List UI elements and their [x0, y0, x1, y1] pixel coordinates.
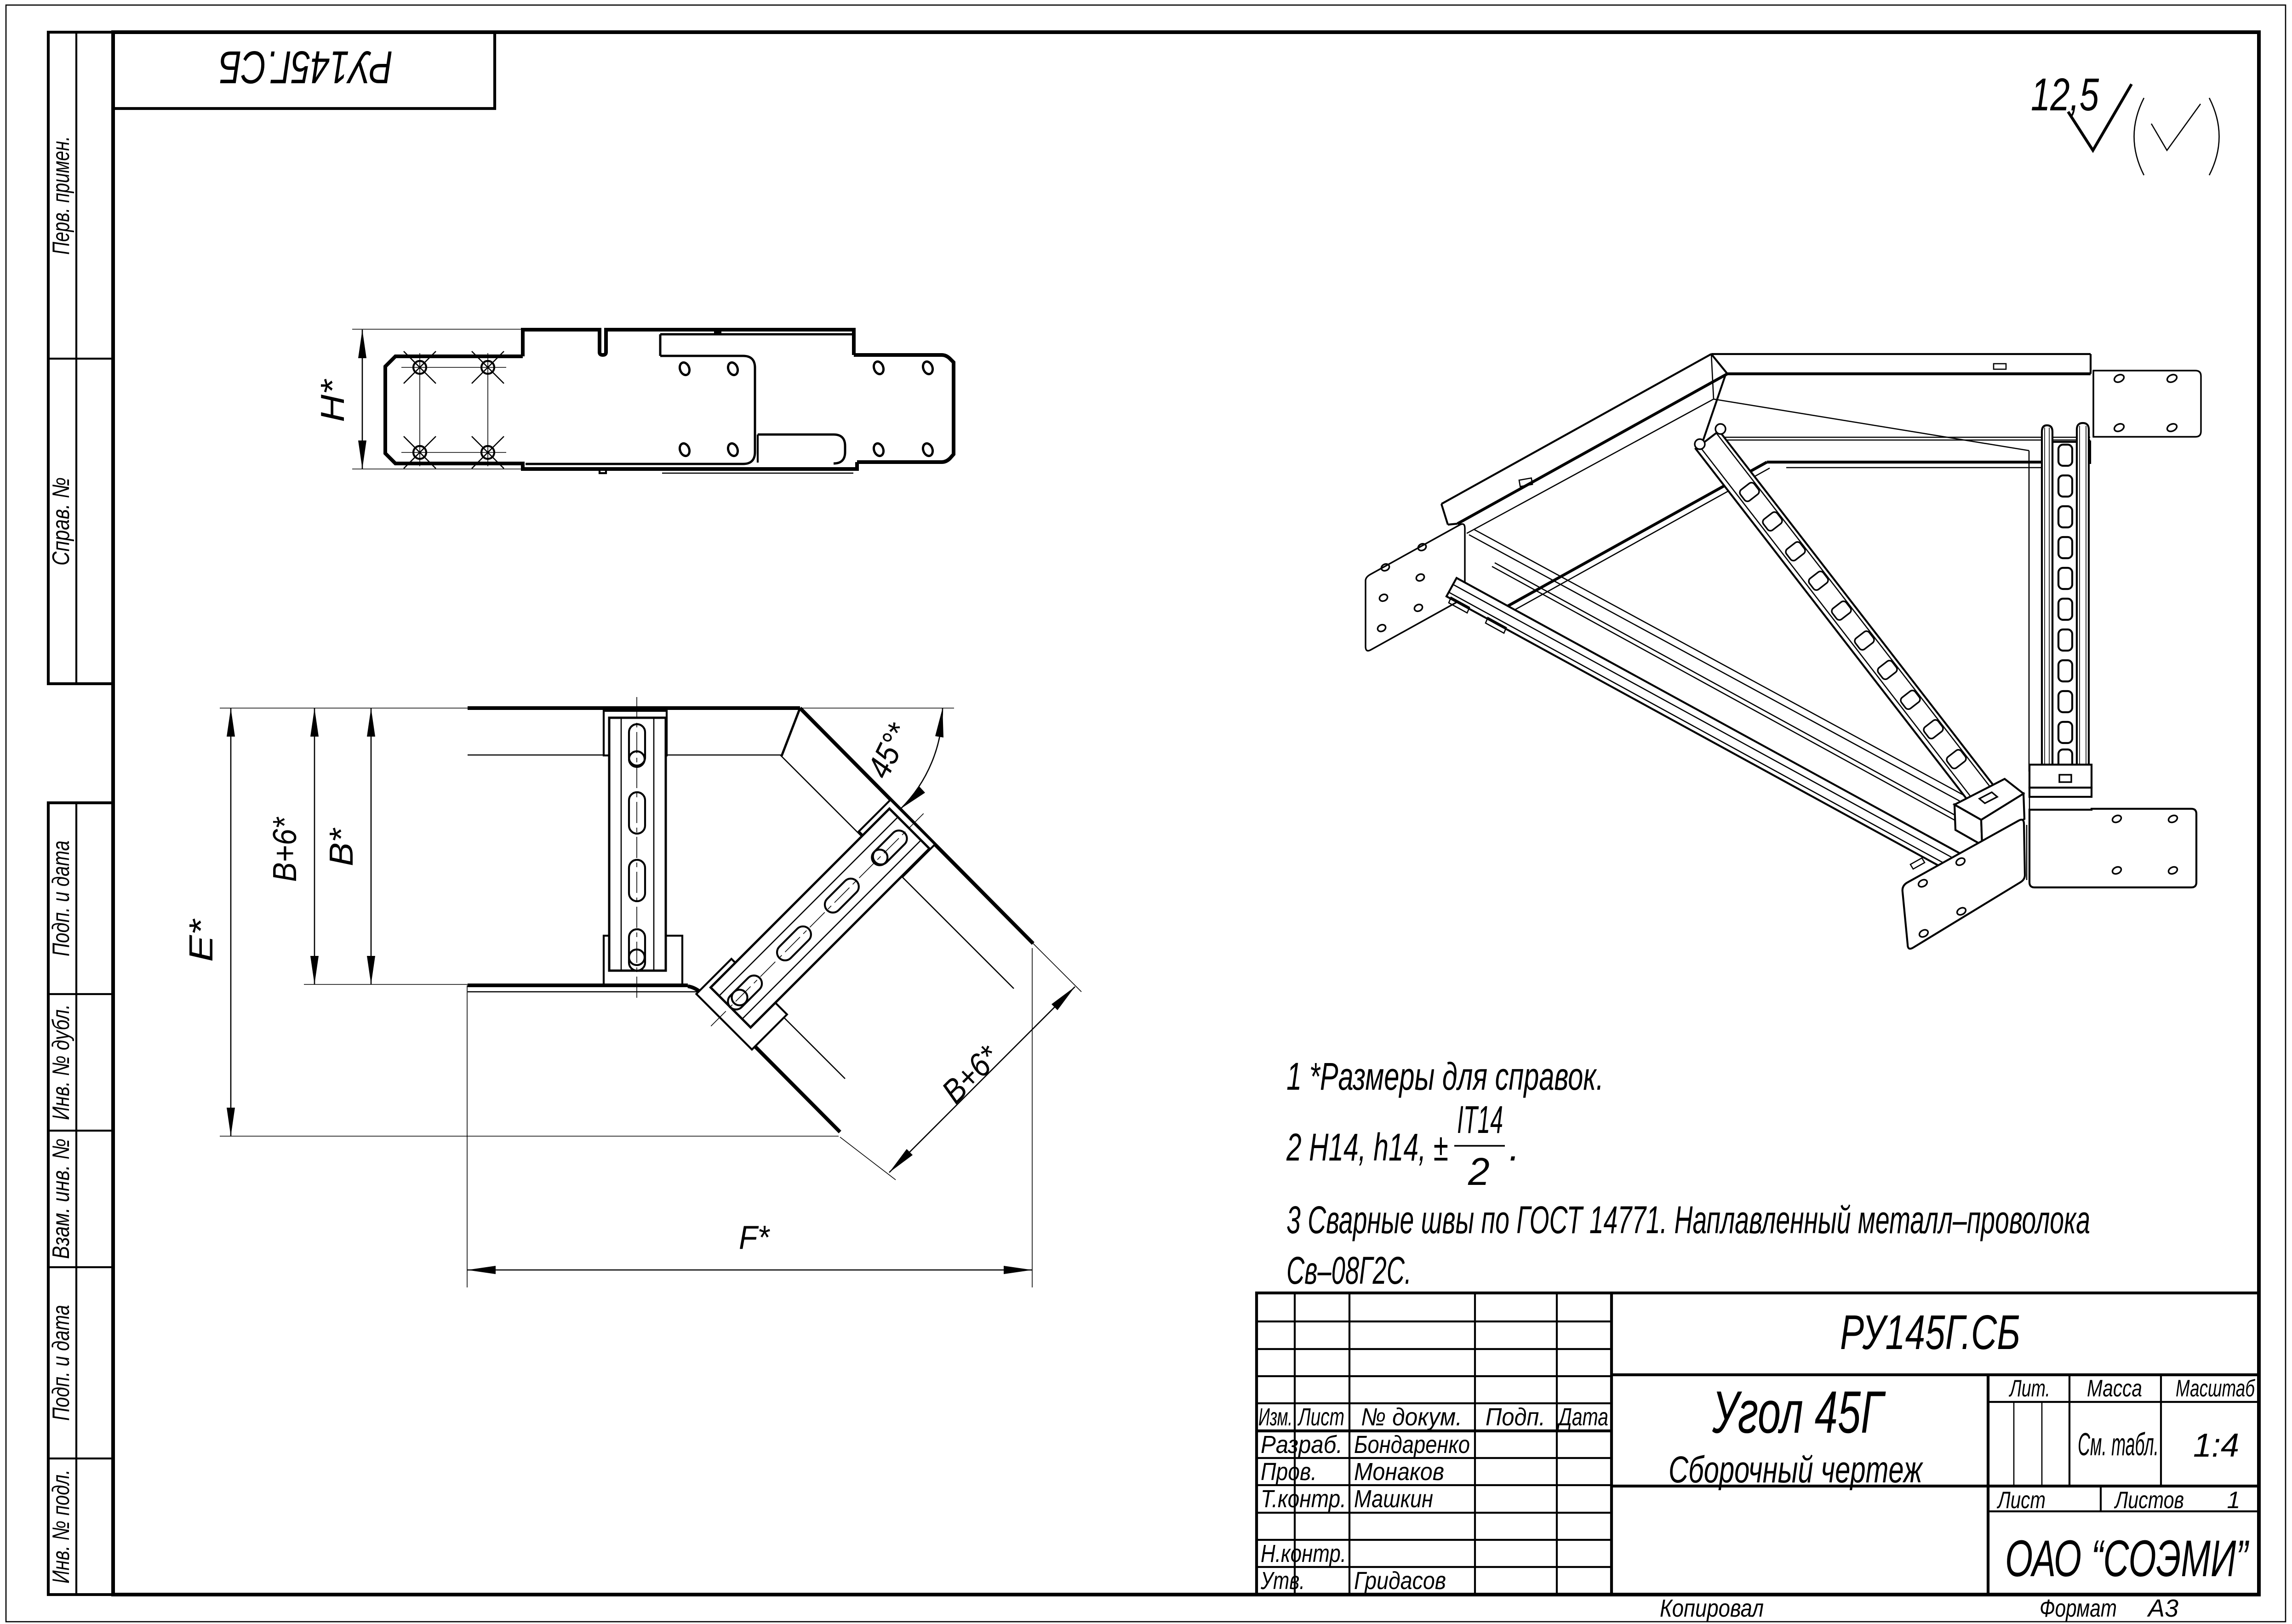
- svg-text:Монаков: Монаков: [1354, 1458, 1444, 1486]
- svg-text:1 *Размеры для справок.: 1 *Размеры для справок.: [1286, 1055, 1604, 1098]
- svg-text:12,5: 12,5: [2031, 69, 2099, 120]
- svg-text:Подп. и дата: Подп. и дата: [48, 841, 74, 956]
- svg-text:Утв.: Утв.: [1260, 1567, 1305, 1595]
- svg-text:B*: B*: [323, 828, 360, 866]
- svg-text:Сборочный чертеж: Сборочный чертеж: [1669, 1449, 1924, 1491]
- svg-text:1:4: 1:4: [2193, 1427, 2239, 1464]
- svg-text:Инв. № подл.: Инв. № подл.: [48, 1470, 74, 1584]
- svg-text:E*: E*: [183, 919, 220, 962]
- svg-text:Лист: Лист: [1997, 1487, 2046, 1514]
- svg-text:2 Н14, h14, ±: 2 Н14, h14, ±: [1286, 1126, 1448, 1169]
- svg-text:Пров.: Пров.: [1261, 1458, 1317, 1486]
- svg-text:Гридасов: Гридасов: [1354, 1567, 1446, 1595]
- svg-text:H*: H*: [314, 379, 351, 422]
- svg-text:Разраб.: Разраб.: [1261, 1431, 1343, 1458]
- svg-text:Н.контр.: Н.контр.: [1261, 1540, 1346, 1567]
- svg-text:Масштаб: Масштаб: [2176, 1375, 2255, 1402]
- svg-text:Изм.: Изм.: [1258, 1403, 1292, 1431]
- svg-text:Т.контр.: Т.контр.: [1261, 1485, 1346, 1513]
- svg-text:Масса: Масса: [2087, 1375, 2142, 1402]
- svg-text:Взам. инв. №: Взам. инв. №: [48, 1138, 74, 1259]
- svg-text:Бондаренко: Бондаренко: [1354, 1431, 1470, 1458]
- svg-text:Подп.: Подп.: [1486, 1403, 1545, 1431]
- svg-text:Инв. № дубл.: Инв. № дубл.: [48, 1004, 74, 1120]
- svg-text:Св–08Г2С.: Св–08Г2С.: [1286, 1249, 1412, 1292]
- svg-text:F*: F*: [739, 1219, 770, 1256]
- svg-text:ОАО “СОЭМИ”: ОАО “СОЭМИ”: [2005, 1530, 2249, 1587]
- svg-text:Лит.: Лит.: [2009, 1375, 2050, 1402]
- svg-text:Угол 45Г: Угол 45Г: [1712, 1378, 1886, 1446]
- svg-text:РУ145Г.СБ: РУ145Г.СБ: [219, 41, 393, 93]
- svg-text:№ докум.: № докум.: [1361, 1403, 1462, 1431]
- svg-text:Машкин: Машкин: [1354, 1485, 1433, 1513]
- svg-text:.: .: [1509, 1126, 1520, 1169]
- svg-text:Лист: Лист: [1297, 1403, 1344, 1431]
- svg-text:1: 1: [2227, 1487, 2241, 1514]
- svg-text:Листов: Листов: [2114, 1487, 2184, 1514]
- svg-text:Подп. и дата: Подп. и дата: [48, 1305, 74, 1421]
- svg-text:Копировал: Копировал: [1660, 1595, 1764, 1622]
- svg-text:Дата: Дата: [1557, 1403, 1608, 1431]
- svg-text:РУ145Г.СБ: РУ145Г.СБ: [1840, 1305, 2020, 1360]
- svg-text:См. табл.: См. табл.: [2078, 1426, 2159, 1462]
- svg-text:IT14: IT14: [1457, 1098, 1503, 1141]
- svg-text:Справ. №: Справ. №: [48, 477, 74, 566]
- svg-text:3 Сварные швы по ГОСТ 147: 3 Сварные швы по ГОСТ 14771. Наплавленны…: [1286, 1198, 2090, 1241]
- svg-text:Формат: Формат: [2040, 1595, 2117, 1622]
- svg-text:2: 2: [1468, 1150, 1490, 1193]
- svg-text:А3: А3: [2147, 1595, 2178, 1622]
- svg-text:B+6*: B+6*: [267, 817, 303, 882]
- svg-text:Перв. примен.: Перв. примен.: [48, 136, 74, 255]
